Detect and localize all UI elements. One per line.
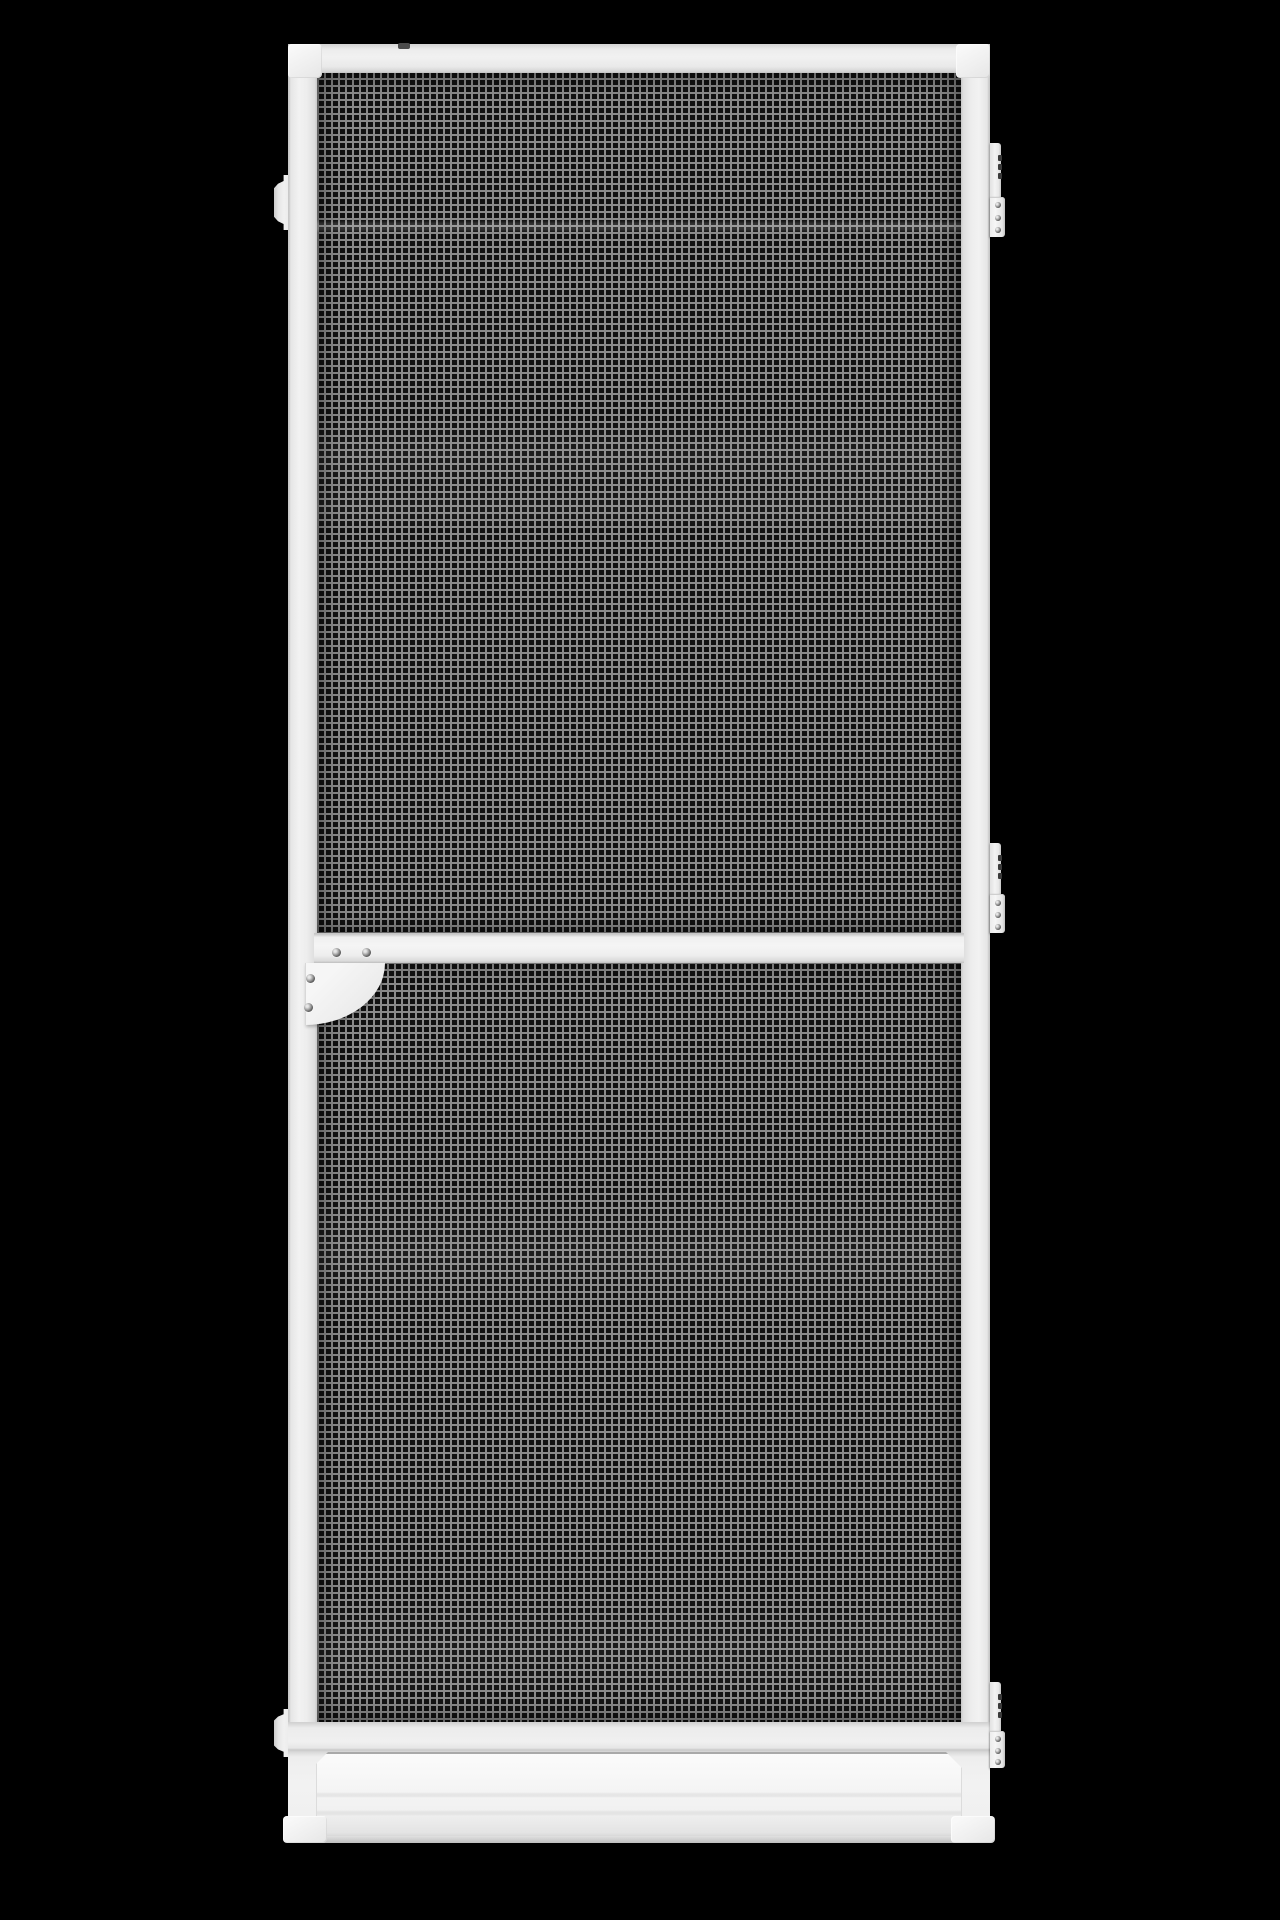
hinge-mounting-plate bbox=[990, 1731, 1005, 1768]
bracket-screw bbox=[362, 948, 371, 957]
corner-cap-top-left bbox=[288, 44, 322, 78]
bracket-screw bbox=[306, 974, 315, 983]
frame-middle-rail bbox=[314, 933, 964, 963]
mesh-panel-upper bbox=[317, 71, 961, 935]
hinge-knuckle-notch bbox=[998, 164, 1002, 170]
hinge-bottom bbox=[990, 1682, 1005, 1768]
hinge-screw bbox=[995, 202, 1001, 208]
hinge-mounting-plate bbox=[990, 894, 1005, 933]
hinge-knuckle-notch bbox=[998, 864, 1002, 870]
mesh-panel-lower bbox=[317, 955, 961, 1723]
frame-right-stile bbox=[961, 44, 990, 1843]
hinge-screw bbox=[995, 924, 1001, 930]
top-rail-seam-notch bbox=[398, 43, 410, 49]
hinge-knuckle-notch bbox=[998, 873, 1002, 879]
hinge-screw bbox=[995, 1748, 1001, 1754]
hinge-knuckle-notch bbox=[998, 1694, 1002, 1700]
hinge-screw bbox=[995, 1759, 1001, 1765]
kick-plate bbox=[316, 1752, 962, 1836]
frame-top-rail bbox=[288, 44, 990, 73]
corner-cap-top-right bbox=[956, 44, 990, 78]
hinge-knuckle-notch bbox=[998, 1703, 1002, 1709]
hinge-knuckle-notch bbox=[998, 173, 1002, 179]
hinge-knuckle-notch bbox=[998, 855, 1002, 861]
product-photo-canvas bbox=[0, 0, 1280, 1920]
bracket-screw bbox=[304, 1003, 313, 1012]
hinge-mounting-plate bbox=[990, 197, 1005, 237]
hinge-screw bbox=[995, 227, 1001, 233]
hinge-top bbox=[990, 143, 1005, 237]
hinge-screw bbox=[995, 215, 1001, 221]
hinge-screw bbox=[995, 900, 1001, 906]
hinge-screw bbox=[995, 912, 1001, 918]
hinge-knuckle-notch bbox=[998, 1712, 1002, 1718]
hinge-screw bbox=[995, 1736, 1001, 1742]
corner-cap-bottom-right bbox=[951, 1816, 995, 1843]
frame-left-stile bbox=[288, 44, 317, 1843]
hinge-middle bbox=[990, 843, 1005, 933]
corner-cap-bottom-left bbox=[283, 1816, 327, 1843]
bracket-screw bbox=[332, 948, 341, 957]
hinge-knuckle-notch bbox=[998, 155, 1002, 161]
